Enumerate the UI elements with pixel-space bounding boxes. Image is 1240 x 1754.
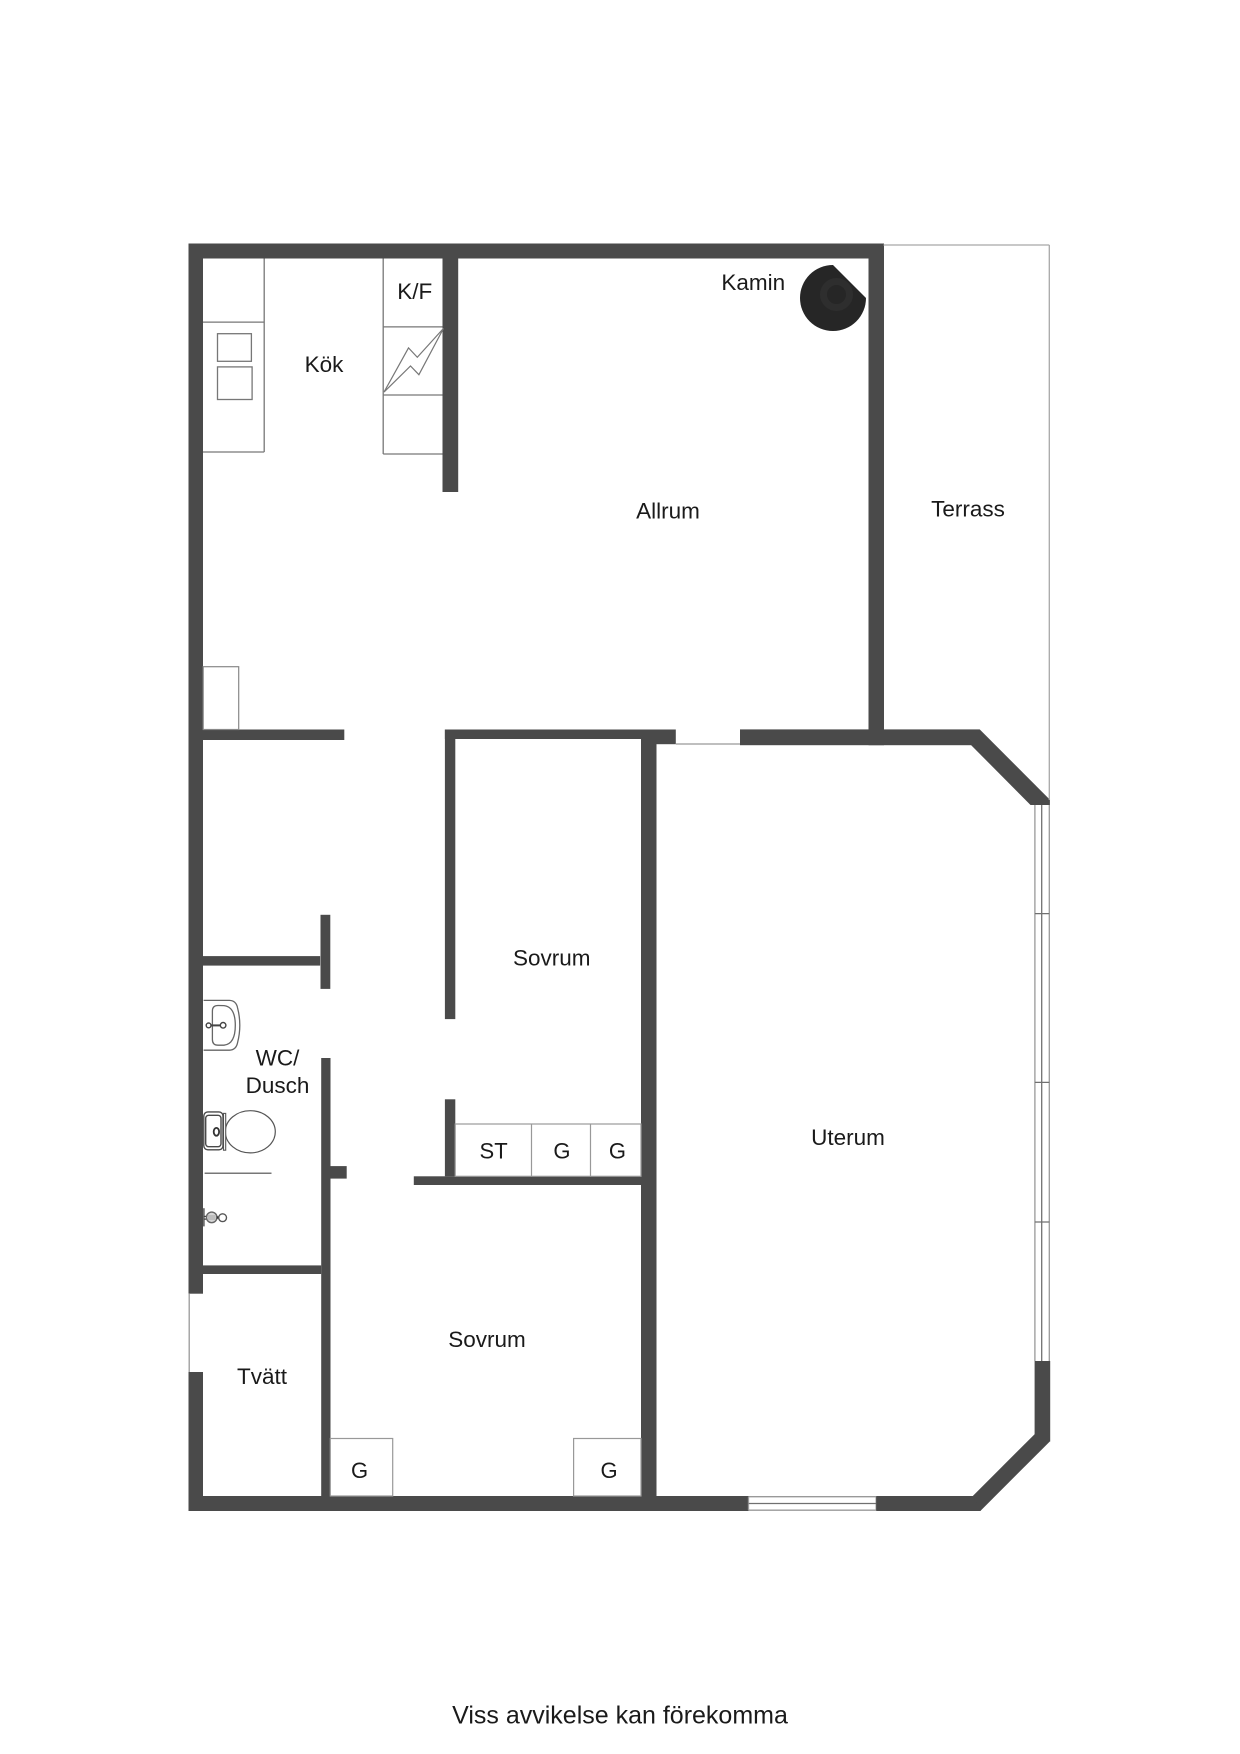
svg-text:G: G [351,1458,368,1483]
svg-text:Kamin: Kamin [721,270,785,295]
svg-text:Terrass: Terrass [931,497,1005,522]
svg-text:Sovrum: Sovrum [448,1327,526,1352]
svg-text:Dusch: Dusch [246,1073,310,1098]
svg-text:Allrum: Allrum [636,499,700,524]
svg-text:G: G [553,1138,570,1163]
svg-text:ST: ST [480,1138,508,1163]
svg-text:WC/: WC/ [256,1046,300,1071]
svg-text:Viss avvikelse kan förekomma: Viss avvikelse kan förekomma [452,1702,788,1730]
svg-text:Tvätt: Tvätt [237,1364,288,1389]
svg-text:Uterum: Uterum [811,1125,885,1150]
svg-text:G: G [600,1458,617,1483]
svg-text:K/F: K/F [397,279,432,304]
svg-text:Kök: Kök [305,352,345,377]
svg-text:G: G [609,1138,626,1163]
svg-text:Sovrum: Sovrum [513,945,591,970]
